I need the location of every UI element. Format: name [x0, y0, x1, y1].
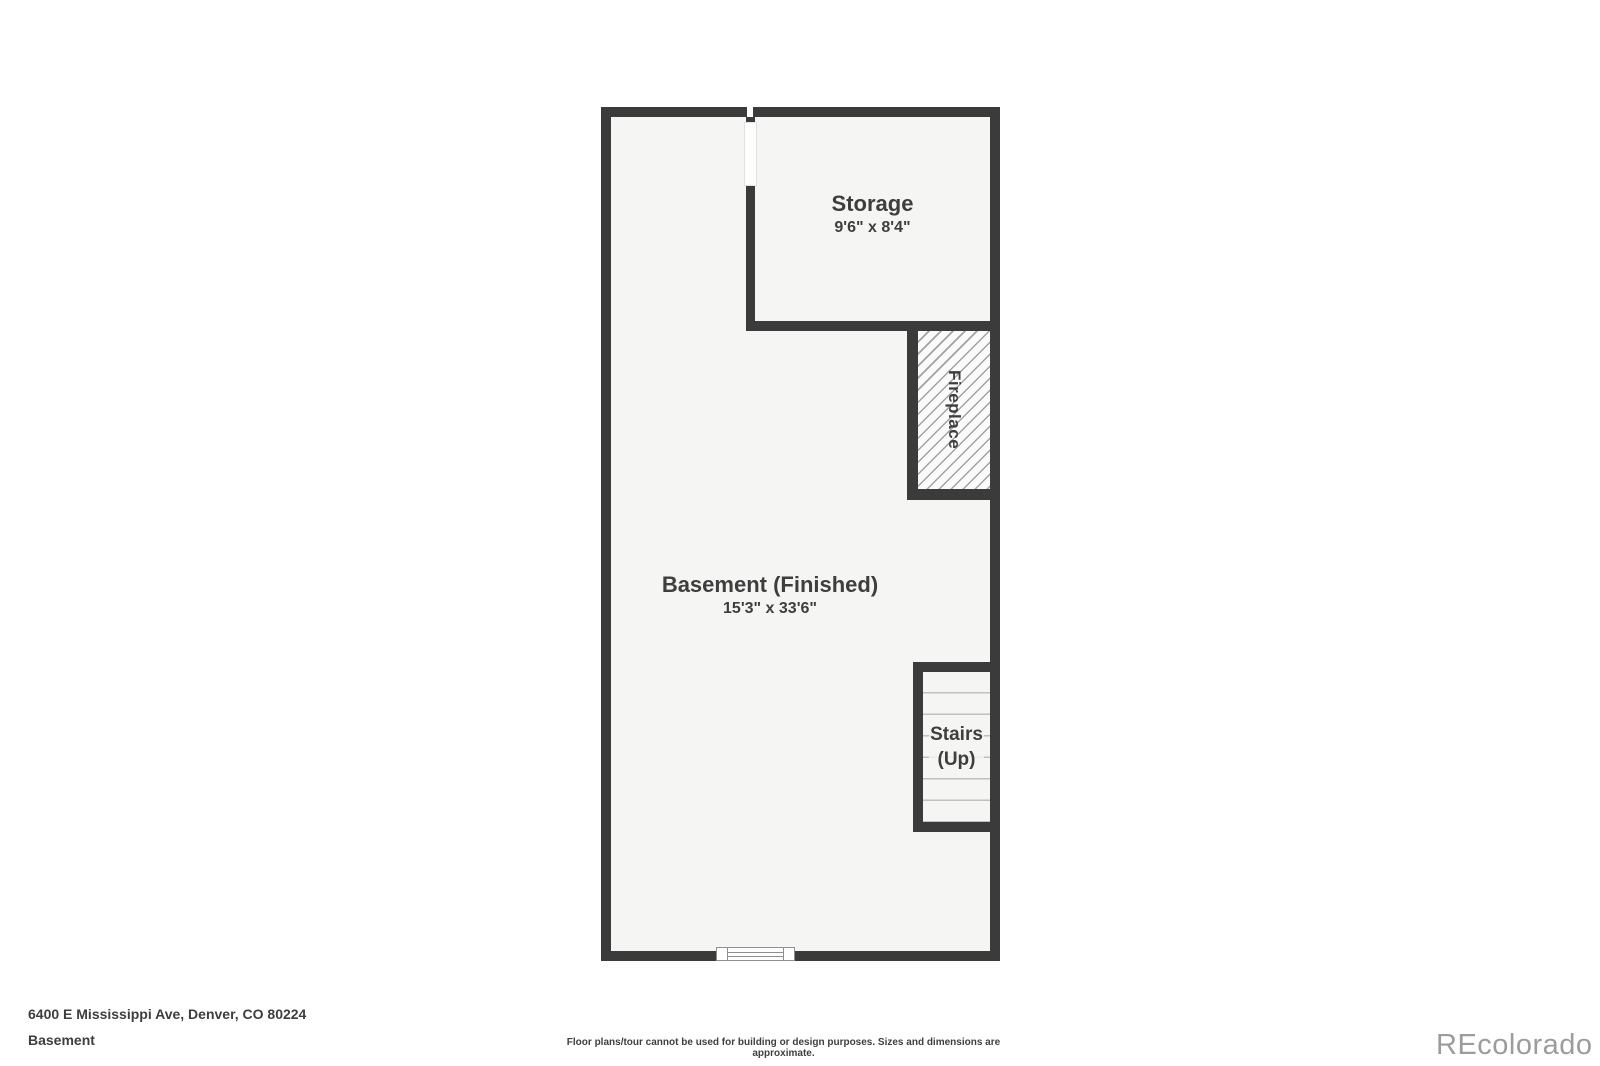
stairs-left-wall — [913, 662, 923, 832]
storage-bottom-wall — [746, 321, 990, 331]
stairs-label: Stairs (Up) — [929, 722, 984, 772]
floor-name: Basement — [28, 1032, 95, 1048]
stairs-label-line1: Stairs — [930, 722, 983, 747]
storage-room-dimensions: 9'6" x 8'4" — [755, 217, 990, 239]
fireplace-left-wall — [907, 321, 918, 500]
stairs-top-wall — [913, 662, 990, 672]
property-address: 6400 E Mississippi Ave, Denver, CO 80224 — [28, 1006, 306, 1022]
window-jamb-right — [783, 948, 784, 960]
door-jamb-notch — [747, 107, 753, 117]
recolorado-watermark: REcolorado — [1436, 1029, 1593, 1062]
stairs-treads: Stairs (Up) — [923, 672, 990, 822]
window-pane-lines — [728, 952, 783, 957]
door-opening — [744, 122, 757, 186]
stairs-label-line2: (Up) — [930, 747, 983, 772]
room-basement: Basement (Finished) 15'3" x 33'6" — [619, 572, 921, 620]
disclaimer-text: Floor plans/tour cannot be used for buil… — [540, 1037, 1027, 1059]
fireplace-hatch: Fireplace — [918, 331, 990, 489]
basement-room-dimensions: 15'3" x 33'6" — [619, 598, 921, 620]
fireplace-bottom-wall — [907, 489, 990, 500]
storage-left-wall — [746, 186, 755, 331]
stairs-bottom-wall — [913, 822, 990, 832]
fireplace-label: Fireplace — [944, 370, 964, 449]
floorplan-outline: Storage 9'6" x 8'4" Fireplace Basement (… — [601, 107, 1000, 961]
storage-room-label: Storage — [755, 191, 990, 217]
window-symbol — [716, 947, 795, 961]
room-storage: Storage 9'6" x 8'4" — [755, 191, 990, 239]
basement-room-label: Basement (Finished) — [619, 572, 921, 598]
